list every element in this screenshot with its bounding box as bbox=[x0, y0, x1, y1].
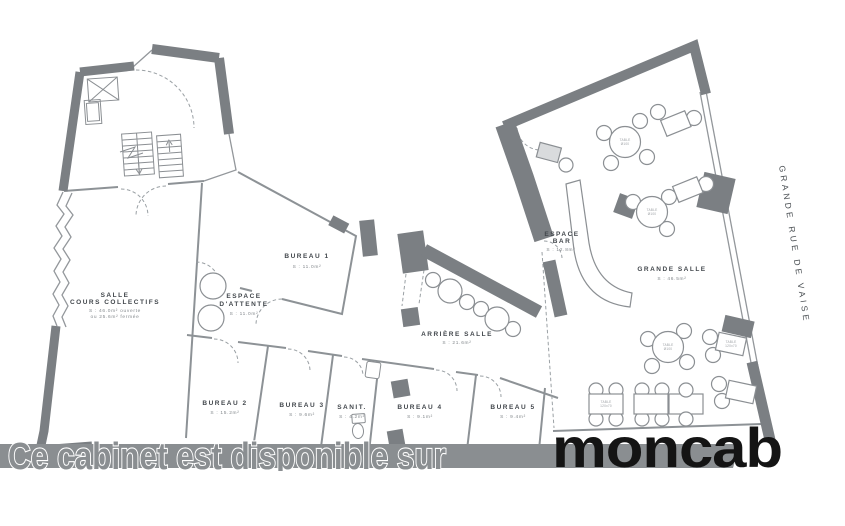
round-table-group: TABLE Ø100 bbox=[641, 324, 695, 374]
rect-table-group bbox=[651, 105, 702, 137]
svg-text:BUREAU 4: BUREAU 4 bbox=[397, 404, 442, 411]
dashed-shaft bbox=[402, 270, 424, 306]
torn-wall-outer bbox=[53, 192, 64, 326]
rect-table bbox=[536, 142, 561, 162]
stairs bbox=[120, 132, 183, 178]
svg-text:S : 21.6m²: S : 21.6m² bbox=[442, 340, 471, 346]
svg-text:S : 11.0m²: S : 11.0m² bbox=[230, 311, 259, 317]
room-label-attente: ESPACE D'ATTENTE S : 11.0m² bbox=[219, 293, 268, 317]
svg-text:S : 15.2m²: S : 15.2m² bbox=[210, 410, 239, 416]
svg-text:BUREAU 1: BUREAU 1 bbox=[284, 253, 329, 260]
chair bbox=[426, 273, 441, 288]
svg-text:BUREAU 2: BUREAU 2 bbox=[202, 400, 247, 407]
svg-text:S : 46.5m²: S : 46.5m² bbox=[657, 276, 686, 282]
brand-logo: moncab bbox=[552, 416, 782, 479]
left-wing-walls bbox=[40, 49, 229, 450]
room-label-grande-salle: GRANDE SALLE S : 46.5m² bbox=[637, 266, 706, 282]
room-label-bureau4: BUREAU 4 S : 9.1m² bbox=[397, 404, 442, 420]
svg-text:Ø100: Ø100 bbox=[621, 142, 630, 146]
room-label-sanit: SANIT. S : 4.2m² bbox=[337, 404, 367, 420]
chair bbox=[460, 295, 475, 310]
room-label-bureau2: BUREAU 2 S : 15.2m² bbox=[202, 400, 247, 416]
floor-plan-page: TABLE Ø100 TABLE Ø100 TABLE Ø100 bbox=[0, 0, 845, 526]
svg-text:ESPACE: ESPACE bbox=[226, 293, 261, 300]
svg-text:S : 4.2m²: S : 4.2m² bbox=[339, 414, 365, 420]
room-label-bureau3: BUREAU 3 S : 9.6m² bbox=[279, 402, 324, 418]
door-arcs bbox=[121, 70, 562, 397]
svg-text:S : 12.8m²: S : 12.8m² bbox=[546, 247, 575, 253]
hall-right-edge bbox=[204, 134, 236, 181]
round-table bbox=[438, 279, 462, 303]
svg-text:ESPACE: ESPACE bbox=[544, 231, 579, 238]
rect-table-group bbox=[712, 377, 757, 409]
svg-text:SANIT.: SANIT. bbox=[337, 404, 367, 411]
room-label-arriere-salle: ARRIÈRE SALLE S : 21.6m² bbox=[421, 329, 493, 346]
room-label-salle: SALLE COURS COLLECTIFS S : 46.0m² ouvert… bbox=[70, 292, 160, 320]
svg-text:BUREAU 5: BUREAU 5 bbox=[490, 404, 535, 411]
salle-right-wall bbox=[186, 183, 202, 438]
pillar bbox=[359, 219, 378, 256]
round-table bbox=[200, 273, 226, 299]
svg-text:120x70: 120x70 bbox=[600, 404, 612, 408]
rect-table bbox=[634, 394, 668, 414]
svg-text:ou 25.6m² fermée: ou 25.6m² fermée bbox=[90, 314, 139, 320]
pillar bbox=[401, 307, 420, 327]
svg-text:GRANDE SALLE: GRANDE SALLE bbox=[637, 266, 706, 273]
pillar bbox=[391, 379, 411, 399]
toilet bbox=[352, 361, 381, 439]
svg-text:SALLE: SALLE bbox=[101, 292, 130, 299]
room-label-bureau1: BUREAU 1 S : 11.0m² bbox=[284, 253, 329, 270]
svg-text:S : 9.1m²: S : 9.1m² bbox=[407, 414, 433, 420]
hall-salle-divider bbox=[64, 181, 204, 191]
svg-text:S : 11.0m²: S : 11.0m² bbox=[293, 264, 322, 270]
entry-jamb bbox=[133, 50, 152, 67]
closet-shelves bbox=[84, 77, 119, 125]
round-table bbox=[198, 305, 224, 331]
floor-plan-svg: TABLE Ø100 TABLE Ø100 TABLE Ø100 bbox=[0, 0, 845, 526]
rect-table-group bbox=[536, 142, 573, 172]
round-table-group: TABLE Ø100 bbox=[597, 114, 655, 171]
svg-text:BUREAU 3: BUREAU 3 bbox=[279, 402, 324, 409]
svg-text:Ø100: Ø100 bbox=[664, 347, 673, 351]
svg-text:ARRIÈRE SALLE: ARRIÈRE SALLE bbox=[421, 329, 493, 338]
svg-text:D'ATTENTE: D'ATTENTE bbox=[219, 301, 268, 308]
svg-text:120x70: 120x70 bbox=[725, 344, 737, 348]
svg-text:S : 9.4m²: S : 9.4m² bbox=[500, 414, 526, 420]
svg-text:S : 46.0m² ouverte: S : 46.0m² ouverte bbox=[89, 308, 141, 314]
svg-text:S : 9.6m²: S : 9.6m² bbox=[289, 412, 315, 418]
street-label: GRANDE RUE DE VAISE bbox=[777, 165, 812, 325]
svg-text:Ø100: Ø100 bbox=[648, 212, 657, 216]
bottom-crop bbox=[0, 471, 845, 526]
svg-text:COURS COLLECTIFS: COURS COLLECTIFS bbox=[70, 299, 160, 306]
round-table bbox=[485, 307, 509, 331]
svg-text:BAR: BAR bbox=[553, 238, 572, 245]
room-label-bureau5: BUREAU 5 S : 9.4m² bbox=[490, 404, 535, 420]
